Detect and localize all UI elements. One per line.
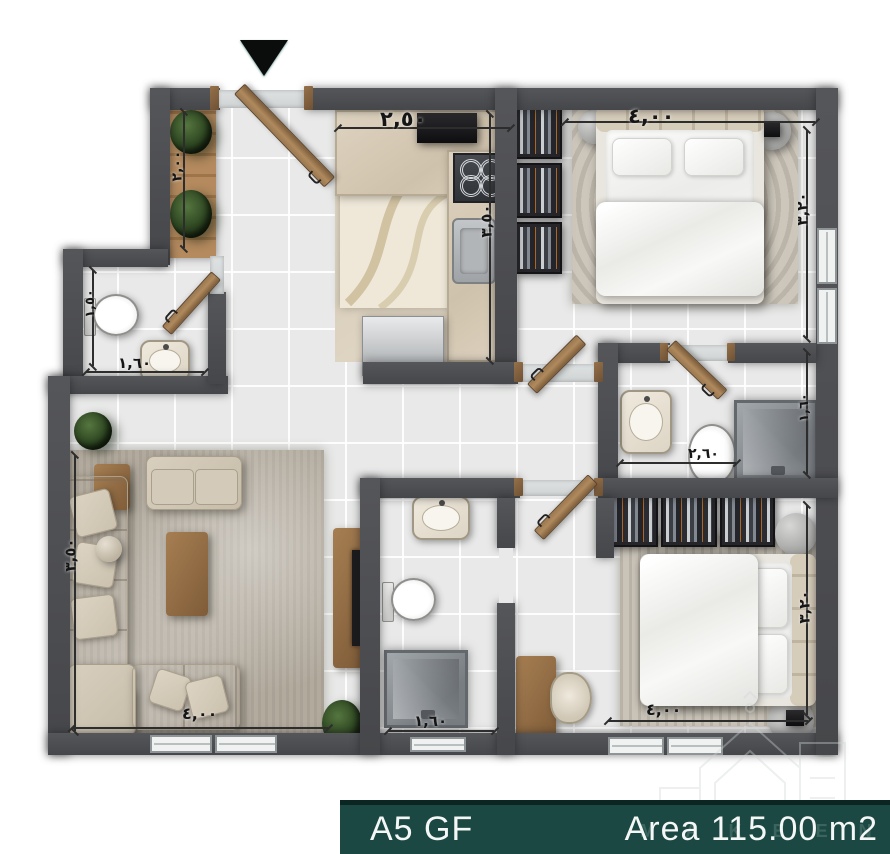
dimension-label-wc-depth: ١,٥٠ <box>83 289 98 318</box>
sofa-corner <box>68 664 136 736</box>
ensuite-sink <box>620 390 672 454</box>
shower-drain <box>771 466 785 475</box>
duvet <box>640 554 758 706</box>
hanging-clothes <box>666 492 712 542</box>
dimension-line <box>74 455 76 731</box>
door-frame <box>660 343 668 361</box>
plant <box>170 110 212 154</box>
wall <box>63 249 83 389</box>
wall <box>816 88 838 755</box>
door-frame <box>514 478 523 496</box>
desk-chair <box>550 672 592 724</box>
dimension-label-balcony-length: ٢,٠٠ <box>169 151 185 182</box>
dimension-line <box>72 727 328 729</box>
coffee-table <box>166 532 208 616</box>
area-label: Area 115.00 m2 <box>625 810 890 849</box>
loveseat <box>146 456 242 510</box>
dimension-label-ensuite-width: ٢,٦٠ <box>688 446 719 462</box>
dimension-label-wc-width: ١,٦٠ <box>118 354 151 372</box>
hanging-clothes <box>725 492 770 542</box>
faucet-icon <box>644 396 650 402</box>
door-frame <box>304 86 313 110</box>
window-mullion <box>219 743 275 745</box>
ottoman <box>96 536 122 562</box>
pillow <box>612 138 672 176</box>
sofa-cushion <box>70 593 119 640</box>
dimension-line <box>388 730 494 732</box>
wall <box>48 376 228 394</box>
wall <box>363 362 518 384</box>
tv-screen <box>352 550 360 646</box>
dimension-label-entry-width: ٢,٥٠ <box>380 107 426 131</box>
hanging-clothes <box>520 168 557 213</box>
unit-code-label: A5 GF <box>340 810 473 849</box>
wall <box>596 498 614 558</box>
dimension-line <box>92 270 94 366</box>
plan-info-bar: M A K E E N A5 GF Area 115.00 m2 <box>340 800 890 854</box>
window <box>150 735 212 753</box>
loveseat-cushion <box>195 469 238 505</box>
exterior-notch <box>0 85 150 255</box>
dimension-label-living-width: ٤,٠٠ <box>182 704 217 723</box>
floor-plan-canvas: ٢,٥٠ ٤,٠٠ ٣,٢٠ ٣,٥٠ ٢,٠٠ ١,٦٠ ١,٥٠ ٣,٥٠ … <box>0 0 890 854</box>
dimension-label-kitchen-depth: ٣,٥٠ <box>478 204 496 237</box>
bedroom2-bed <box>640 554 816 706</box>
door-frame <box>594 362 603 382</box>
dimension-label-bedroom2-depth: ٣,٢٠ <box>796 590 814 623</box>
door-frame <box>727 343 735 361</box>
window <box>410 737 466 752</box>
sink-basin <box>422 505 460 531</box>
loveseat-cushion <box>151 469 194 505</box>
dimension-label-bedroom1-width: ٤,٠٠ <box>628 104 674 128</box>
window <box>215 735 277 753</box>
window <box>817 228 837 284</box>
hanging-clothes <box>520 109 557 154</box>
dimension-label-bedroom1-depth: ٣,٢٠ <box>794 192 812 225</box>
plant <box>74 412 112 450</box>
dimension-line <box>565 121 815 123</box>
sink-basin <box>629 403 663 441</box>
bathroom-sink <box>412 496 470 540</box>
wall <box>360 478 520 498</box>
exterior-notch <box>0 380 48 760</box>
wall <box>497 498 515 548</box>
plant <box>170 190 212 238</box>
bedroom1-bed <box>596 106 764 304</box>
wardrobe-section <box>515 104 562 159</box>
wardrobe-section <box>515 163 562 218</box>
burner-icon <box>460 175 482 197</box>
door-frame <box>210 86 219 110</box>
wall <box>497 603 515 755</box>
nightstand <box>775 513 817 555</box>
wall <box>208 292 226 384</box>
sink-basin <box>149 349 181 373</box>
duvet <box>596 202 764 296</box>
window-mullion <box>826 292 828 342</box>
exterior-notch <box>0 253 64 383</box>
pillow <box>684 138 744 176</box>
faucet-icon <box>163 344 169 350</box>
hanging-clothes <box>520 227 557 269</box>
wc-toilet <box>93 294 139 336</box>
window-mullion <box>154 743 210 745</box>
wall <box>150 88 170 265</box>
wall <box>598 478 838 498</box>
window-mullion <box>826 232 828 282</box>
door-frame <box>514 362 523 382</box>
wall <box>728 343 816 363</box>
window-mullion <box>414 744 464 746</box>
bathroom-door-opening <box>499 548 513 603</box>
entrance-arrow-icon <box>240 40 288 76</box>
window <box>817 288 837 344</box>
dimension-label-ensuite-depth: ١,٦٠ <box>797 393 812 422</box>
headboard <box>790 554 816 706</box>
wardrobe-section <box>515 222 562 274</box>
dimension-line <box>620 462 736 464</box>
dimension-label-living-depth: ٣,٥٠ <box>62 538 80 571</box>
table-lamp <box>764 121 780 137</box>
wall <box>495 88 517 380</box>
dimension-line <box>806 130 808 338</box>
wall <box>360 478 380 755</box>
dimension-label-bath2-width: ١,٦٠ <box>414 712 447 730</box>
bathroom-toilet <box>391 578 436 621</box>
